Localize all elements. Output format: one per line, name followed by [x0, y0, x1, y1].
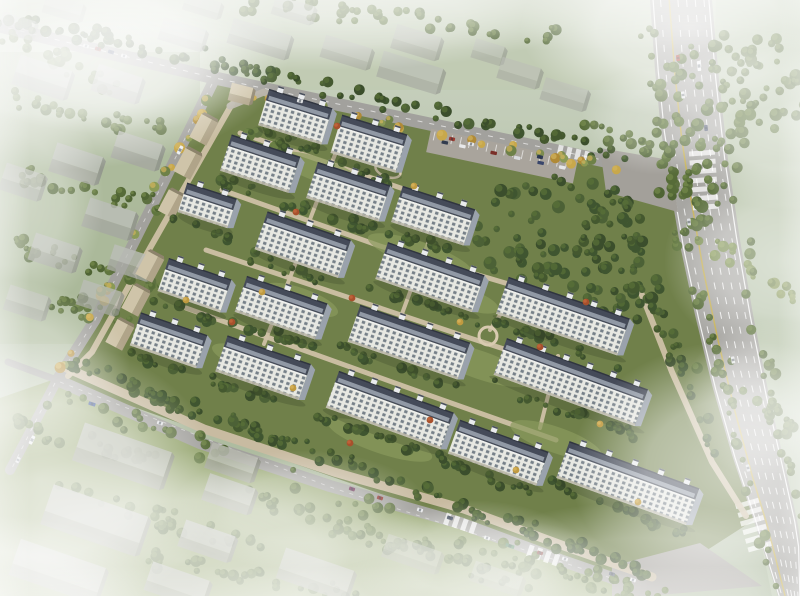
- autumn-tree: [259, 289, 266, 296]
- aerial-render: Aerial rendering of residential communit…: [0, 0, 800, 596]
- autumn-tree: [513, 467, 520, 474]
- fog-patch: [580, 65, 740, 175]
- autumn-tree: [349, 295, 356, 302]
- autumn-tree: [583, 299, 590, 306]
- autumn-tree: [334, 123, 341, 130]
- haze-top: [0, 0, 800, 50]
- haze-left: [0, 0, 30, 596]
- autumn-tree: [347, 440, 354, 447]
- autumn-tree: [293, 209, 300, 216]
- autumn-tree: [537, 344, 544, 351]
- autumn-tree: [229, 319, 236, 326]
- scene-svg: [0, 0, 800, 596]
- autumn-tree: [411, 183, 418, 190]
- autumn-tree: [427, 417, 434, 424]
- haze-right: [778, 0, 800, 596]
- autumn-tree: [183, 297, 190, 304]
- haze-bottom: [0, 566, 800, 596]
- autumn-tree: [290, 385, 297, 392]
- fog-patch: [170, 450, 430, 570]
- autumn-tree: [457, 319, 464, 326]
